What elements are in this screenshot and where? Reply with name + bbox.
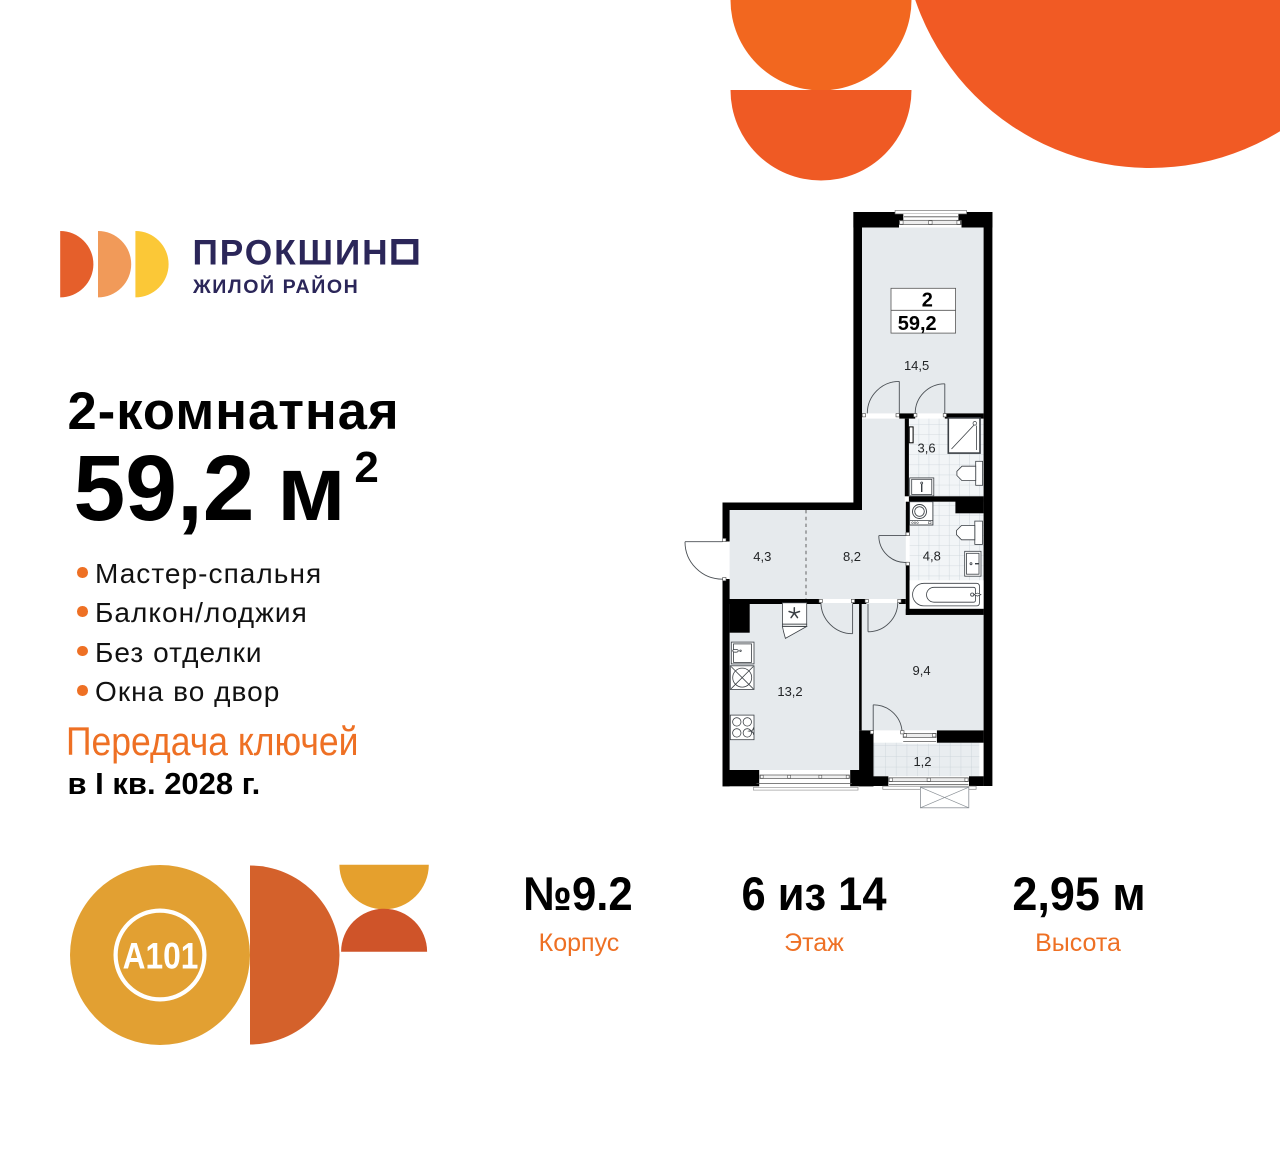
svg-text:2: 2 [922, 289, 933, 311]
svg-text:4,3: 4,3 [753, 549, 771, 564]
svg-text:3,6: 3,6 [918, 441, 936, 456]
svg-text:4,8: 4,8 [923, 548, 941, 563]
svg-text:13,2: 13,2 [777, 684, 802, 699]
svg-text:9,4: 9,4 [913, 663, 931, 678]
svg-text:14,5: 14,5 [904, 358, 929, 373]
svg-text:ПРОКШИН: ПРОКШИН [193, 234, 390, 273]
svg-text:59,2: 59,2 [898, 313, 937, 335]
svg-text:ЖИЛОЙ РАЙОН: ЖИЛОЙ РАЙОН [192, 274, 359, 298]
svg-text:8,2: 8,2 [843, 549, 861, 564]
svg-text:А101: А101 [123, 936, 199, 977]
svg-text:1,2: 1,2 [913, 754, 931, 769]
